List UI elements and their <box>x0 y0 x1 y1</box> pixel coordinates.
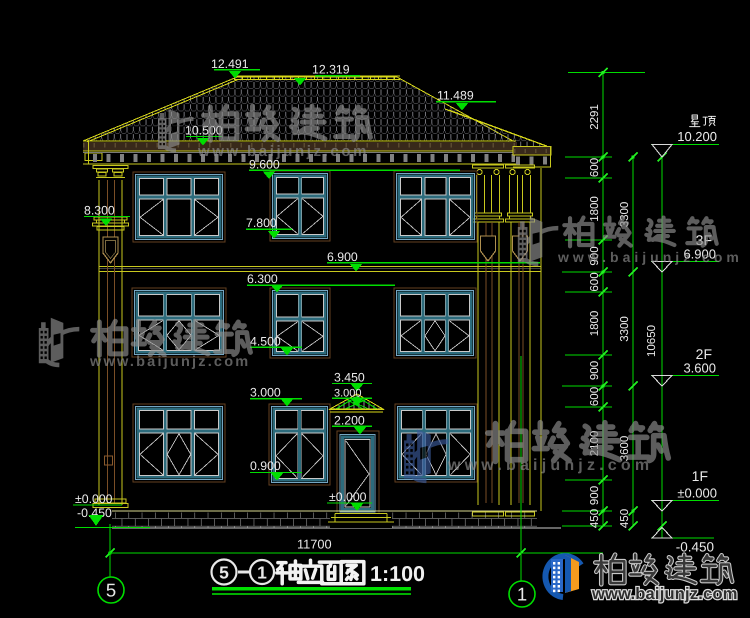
svg-text:-0.450: -0.450 <box>676 540 714 555</box>
svg-text:10.200: 10.200 <box>677 129 717 144</box>
svg-text:3300: 3300 <box>619 316 631 342</box>
svg-text:3.000: 3.000 <box>250 386 281 400</box>
svg-text:450: 450 <box>619 509 631 528</box>
svg-text:1800: 1800 <box>589 311 601 337</box>
svg-text:5: 5 <box>219 563 229 583</box>
svg-text:www.baijunjz.com: www.baijunjz.com <box>197 143 369 160</box>
svg-text:±0.000: ±0.000 <box>75 492 113 506</box>
svg-text:600: 600 <box>589 158 601 177</box>
svg-text:3.450: 3.450 <box>334 371 365 385</box>
svg-text:1800: 1800 <box>589 196 601 222</box>
svg-text:1:100: 1:100 <box>370 562 425 586</box>
svg-text:±0.000: ±0.000 <box>677 486 717 501</box>
svg-text:11700: 11700 <box>297 537 332 552</box>
svg-text:www.baijunjz.com: www.baijunjz.com <box>591 585 738 603</box>
svg-text:1F: 1F <box>692 468 708 484</box>
svg-text:1: 1 <box>257 563 267 583</box>
svg-text:6.900: 6.900 <box>327 250 358 264</box>
svg-text:4.500: 4.500 <box>250 335 281 349</box>
svg-text:600: 600 <box>589 272 601 291</box>
svg-text:5: 5 <box>106 580 116 601</box>
svg-text:www.baijunjz.com: www.baijunjz.com <box>89 354 250 370</box>
svg-text:2291: 2291 <box>589 104 601 130</box>
svg-text:1: 1 <box>517 584 527 605</box>
svg-text:8.300: 8.300 <box>84 204 115 218</box>
svg-text:12.319: 12.319 <box>312 63 350 77</box>
svg-text:11.489: 11.489 <box>437 89 474 103</box>
svg-text:450: 450 <box>589 509 601 528</box>
svg-text:7.800: 7.800 <box>246 216 277 230</box>
svg-text:900: 900 <box>589 361 601 380</box>
svg-text:www.baijunjz.com: www.baijunjz.com <box>557 249 743 265</box>
svg-text:3.600: 3.600 <box>683 361 716 376</box>
svg-text:2.200: 2.200 <box>334 414 365 428</box>
svg-text:10650: 10650 <box>646 325 658 357</box>
svg-text:±0.000: ±0.000 <box>329 490 367 504</box>
svg-text:600: 600 <box>589 387 601 406</box>
svg-text:0.900: 0.900 <box>250 459 281 473</box>
svg-text:900: 900 <box>589 486 601 505</box>
svg-text:12.491: 12.491 <box>211 57 249 71</box>
svg-text:6.300: 6.300 <box>247 272 278 286</box>
svg-text:www.baijunjz.com: www.baijunjz.com <box>447 457 653 474</box>
